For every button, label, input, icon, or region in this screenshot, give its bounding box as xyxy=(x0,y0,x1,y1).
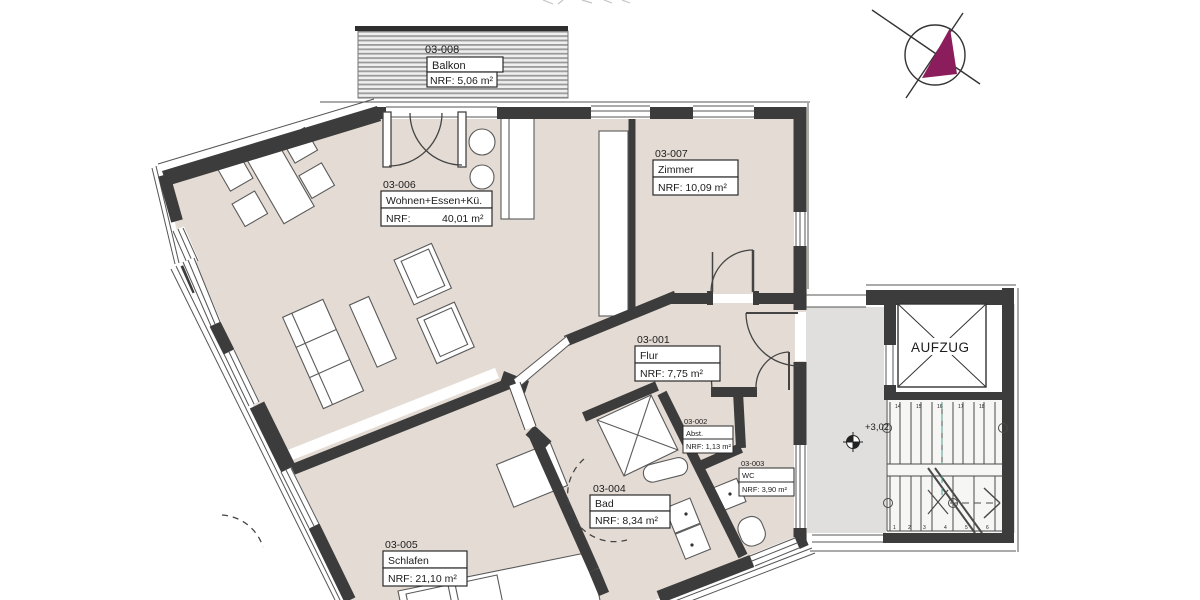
svg-text:NRF: 8,34 m²: NRF: 8,34 m² xyxy=(595,515,659,527)
svg-text:AUFZUG: AUFZUG xyxy=(911,340,970,355)
svg-text:NRF: 3,90 m²: NRF: 3,90 m² xyxy=(742,485,788,494)
svg-text:03-008: 03-008 xyxy=(425,44,459,56)
svg-text:+3,02: +3,02 xyxy=(865,422,889,433)
svg-text:Zimmer: Zimmer xyxy=(658,164,694,176)
svg-text:Flur: Flur xyxy=(640,350,659,362)
svg-text:Balkon: Balkon xyxy=(432,60,466,72)
svg-text:3: 3 xyxy=(923,525,926,531)
svg-text:14: 14 xyxy=(895,404,901,410)
svg-text:03-005: 03-005 xyxy=(385,539,418,551)
svg-text:6: 6 xyxy=(986,525,989,531)
svg-text:15: 15 xyxy=(916,404,922,410)
svg-text:NRF:: NRF: xyxy=(386,213,411,225)
svg-text:NRF: 7,75 m²: NRF: 7,75 m² xyxy=(640,368,704,380)
svg-text:03-002: 03-002 xyxy=(684,417,707,426)
svg-text:03-001: 03-001 xyxy=(637,334,670,346)
svg-text:Bad: Bad xyxy=(595,498,614,510)
svg-text:Abst.: Abst. xyxy=(686,429,703,438)
svg-text:NRF: 5,06 m²: NRF: 5,06 m² xyxy=(430,75,494,87)
svg-text:NRF: 1,13 m²: NRF: 1,13 m² xyxy=(686,442,732,451)
svg-text:NRF: 10,09 m²: NRF: 10,09 m² xyxy=(658,182,727,194)
svg-text:03-007: 03-007 xyxy=(655,148,688,160)
svg-text:5: 5 xyxy=(965,525,968,531)
svg-text:17: 17 xyxy=(958,404,964,410)
svg-text:Wohnen+Essen+Kü.: Wohnen+Essen+Kü. xyxy=(386,195,482,207)
svg-text:NRF: 21,10 m²: NRF: 21,10 m² xyxy=(388,573,457,585)
svg-text:1: 1 xyxy=(893,525,896,531)
svg-text:Schlafen: Schlafen xyxy=(388,555,429,567)
svg-text:03-003: 03-003 xyxy=(741,459,764,468)
svg-text:16: 16 xyxy=(937,404,943,410)
svg-text:03-004: 03-004 xyxy=(593,483,626,495)
svg-text:40,01 m²: 40,01 m² xyxy=(442,213,484,225)
svg-text:4: 4 xyxy=(944,525,947,531)
svg-text:03-006: 03-006 xyxy=(383,179,416,191)
svg-text:18: 18 xyxy=(979,404,985,410)
svg-text:WC: WC xyxy=(742,471,755,480)
svg-text:2: 2 xyxy=(908,525,911,531)
